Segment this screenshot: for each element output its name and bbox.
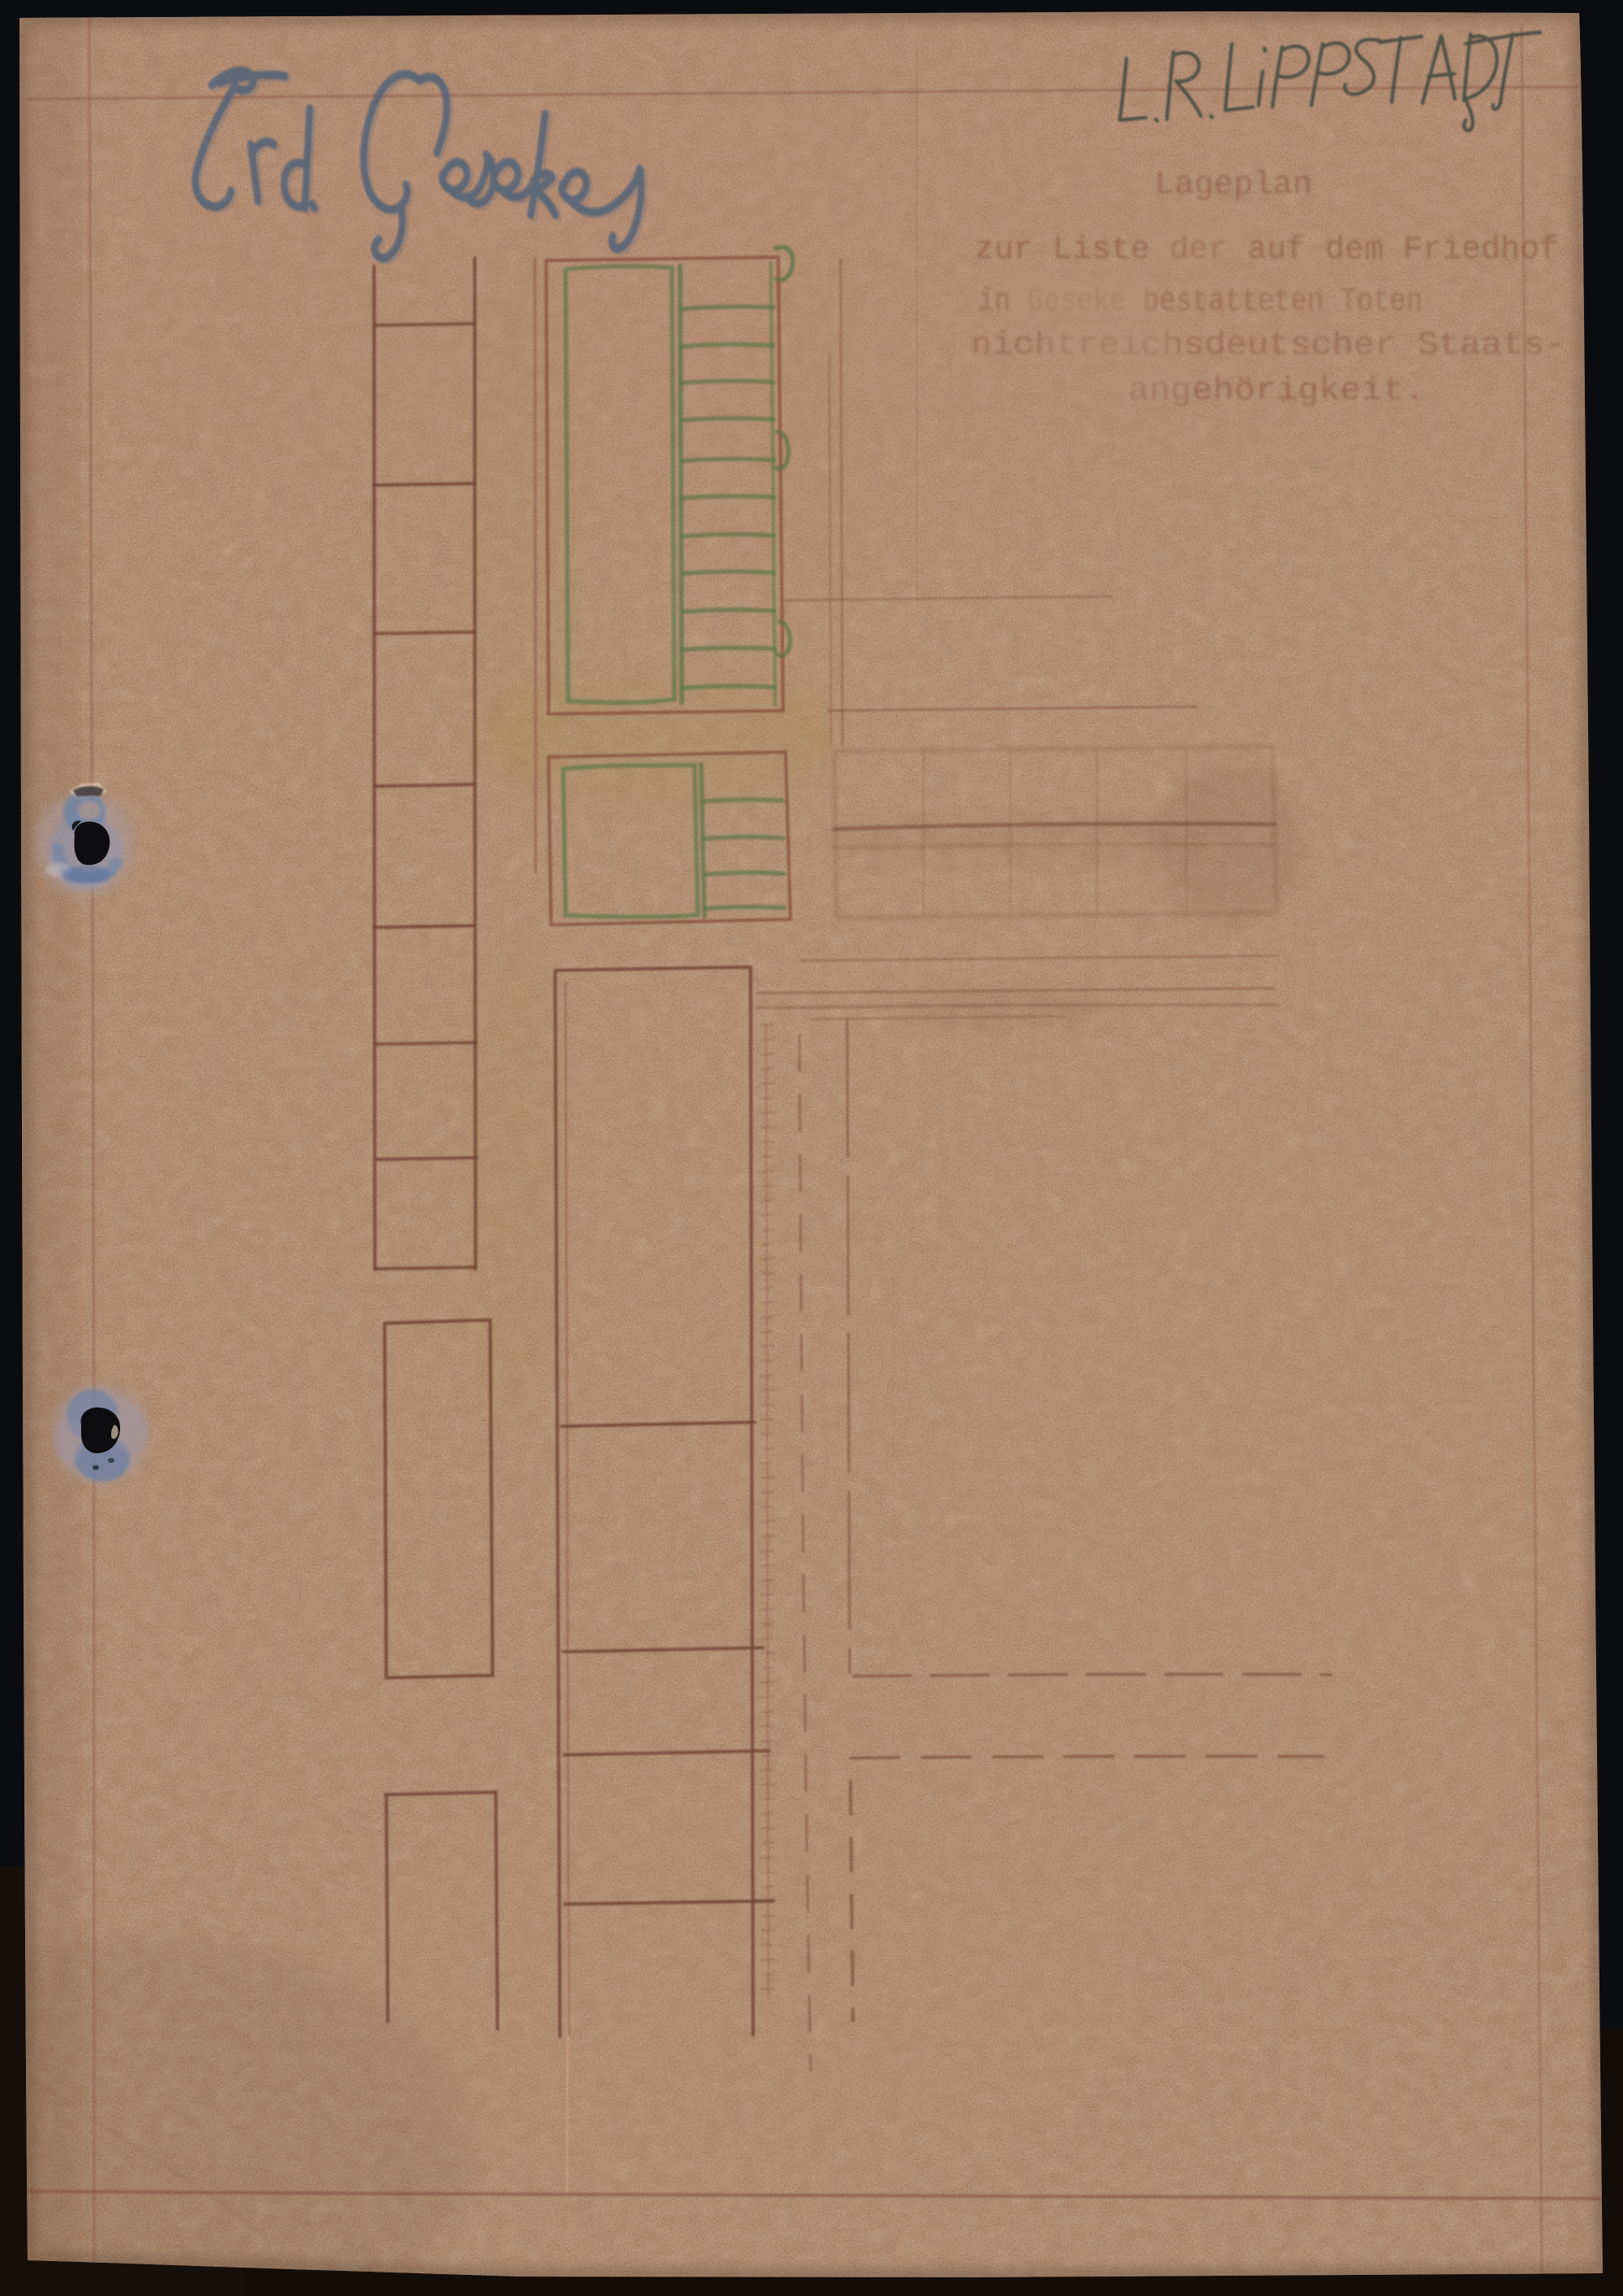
svg-text:zur Liste der auf dem Friedhof: zur Liste der auf dem Friedhof (975, 232, 1559, 269)
svg-text:Lageplan: Lageplan (1155, 167, 1312, 204)
